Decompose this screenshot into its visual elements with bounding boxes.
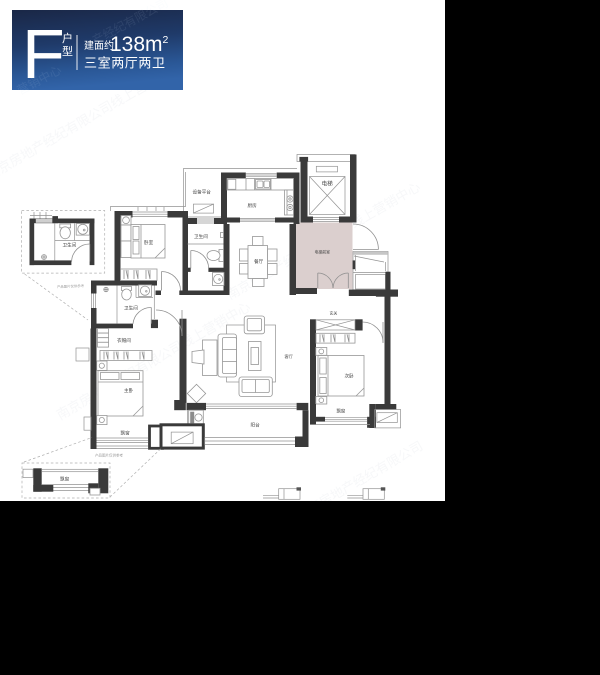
svg-text:衣帽间: 衣帽间 xyxy=(117,337,131,344)
svg-text:厨房: 厨房 xyxy=(248,202,258,209)
svg-text:电梯: 电梯 xyxy=(322,180,334,188)
svg-text:客厅: 客厅 xyxy=(285,353,293,360)
svg-text:产品图片仅供参考: 产品图片仅供参考 xyxy=(57,283,85,289)
svg-text:卫生间: 卫生间 xyxy=(194,233,208,240)
svg-text:电梯前室: 电梯前室 xyxy=(315,250,331,255)
svg-text:飘窗: 飘窗 xyxy=(337,408,346,415)
svg-text:主卧: 主卧 xyxy=(124,387,134,394)
svg-text:户: 户 xyxy=(62,31,73,45)
svg-text:三室两厅两卫: 三室两厅两卫 xyxy=(84,56,166,71)
svg-text:设备平台: 设备平台 xyxy=(193,189,212,196)
svg-text:飘窗: 飘窗 xyxy=(60,476,70,483)
svg-text:型: 型 xyxy=(62,44,73,58)
svg-text:产品图片仅供参考: 产品图片仅供参考 xyxy=(95,453,123,458)
svg-text:次卧: 次卧 xyxy=(345,373,355,380)
svg-text:138m2: 138m2 xyxy=(110,33,169,56)
svg-text:卫生间: 卫生间 xyxy=(63,242,77,249)
svg-text:阳台: 阳台 xyxy=(251,422,261,429)
svg-text:卧室: 卧室 xyxy=(144,239,154,246)
svg-text:玄关: 玄关 xyxy=(330,311,338,316)
svg-text:卫生间: 卫生间 xyxy=(124,305,138,312)
svg-text:餐厅: 餐厅 xyxy=(254,258,264,265)
svg-text:飘窗: 飘窗 xyxy=(121,430,131,437)
